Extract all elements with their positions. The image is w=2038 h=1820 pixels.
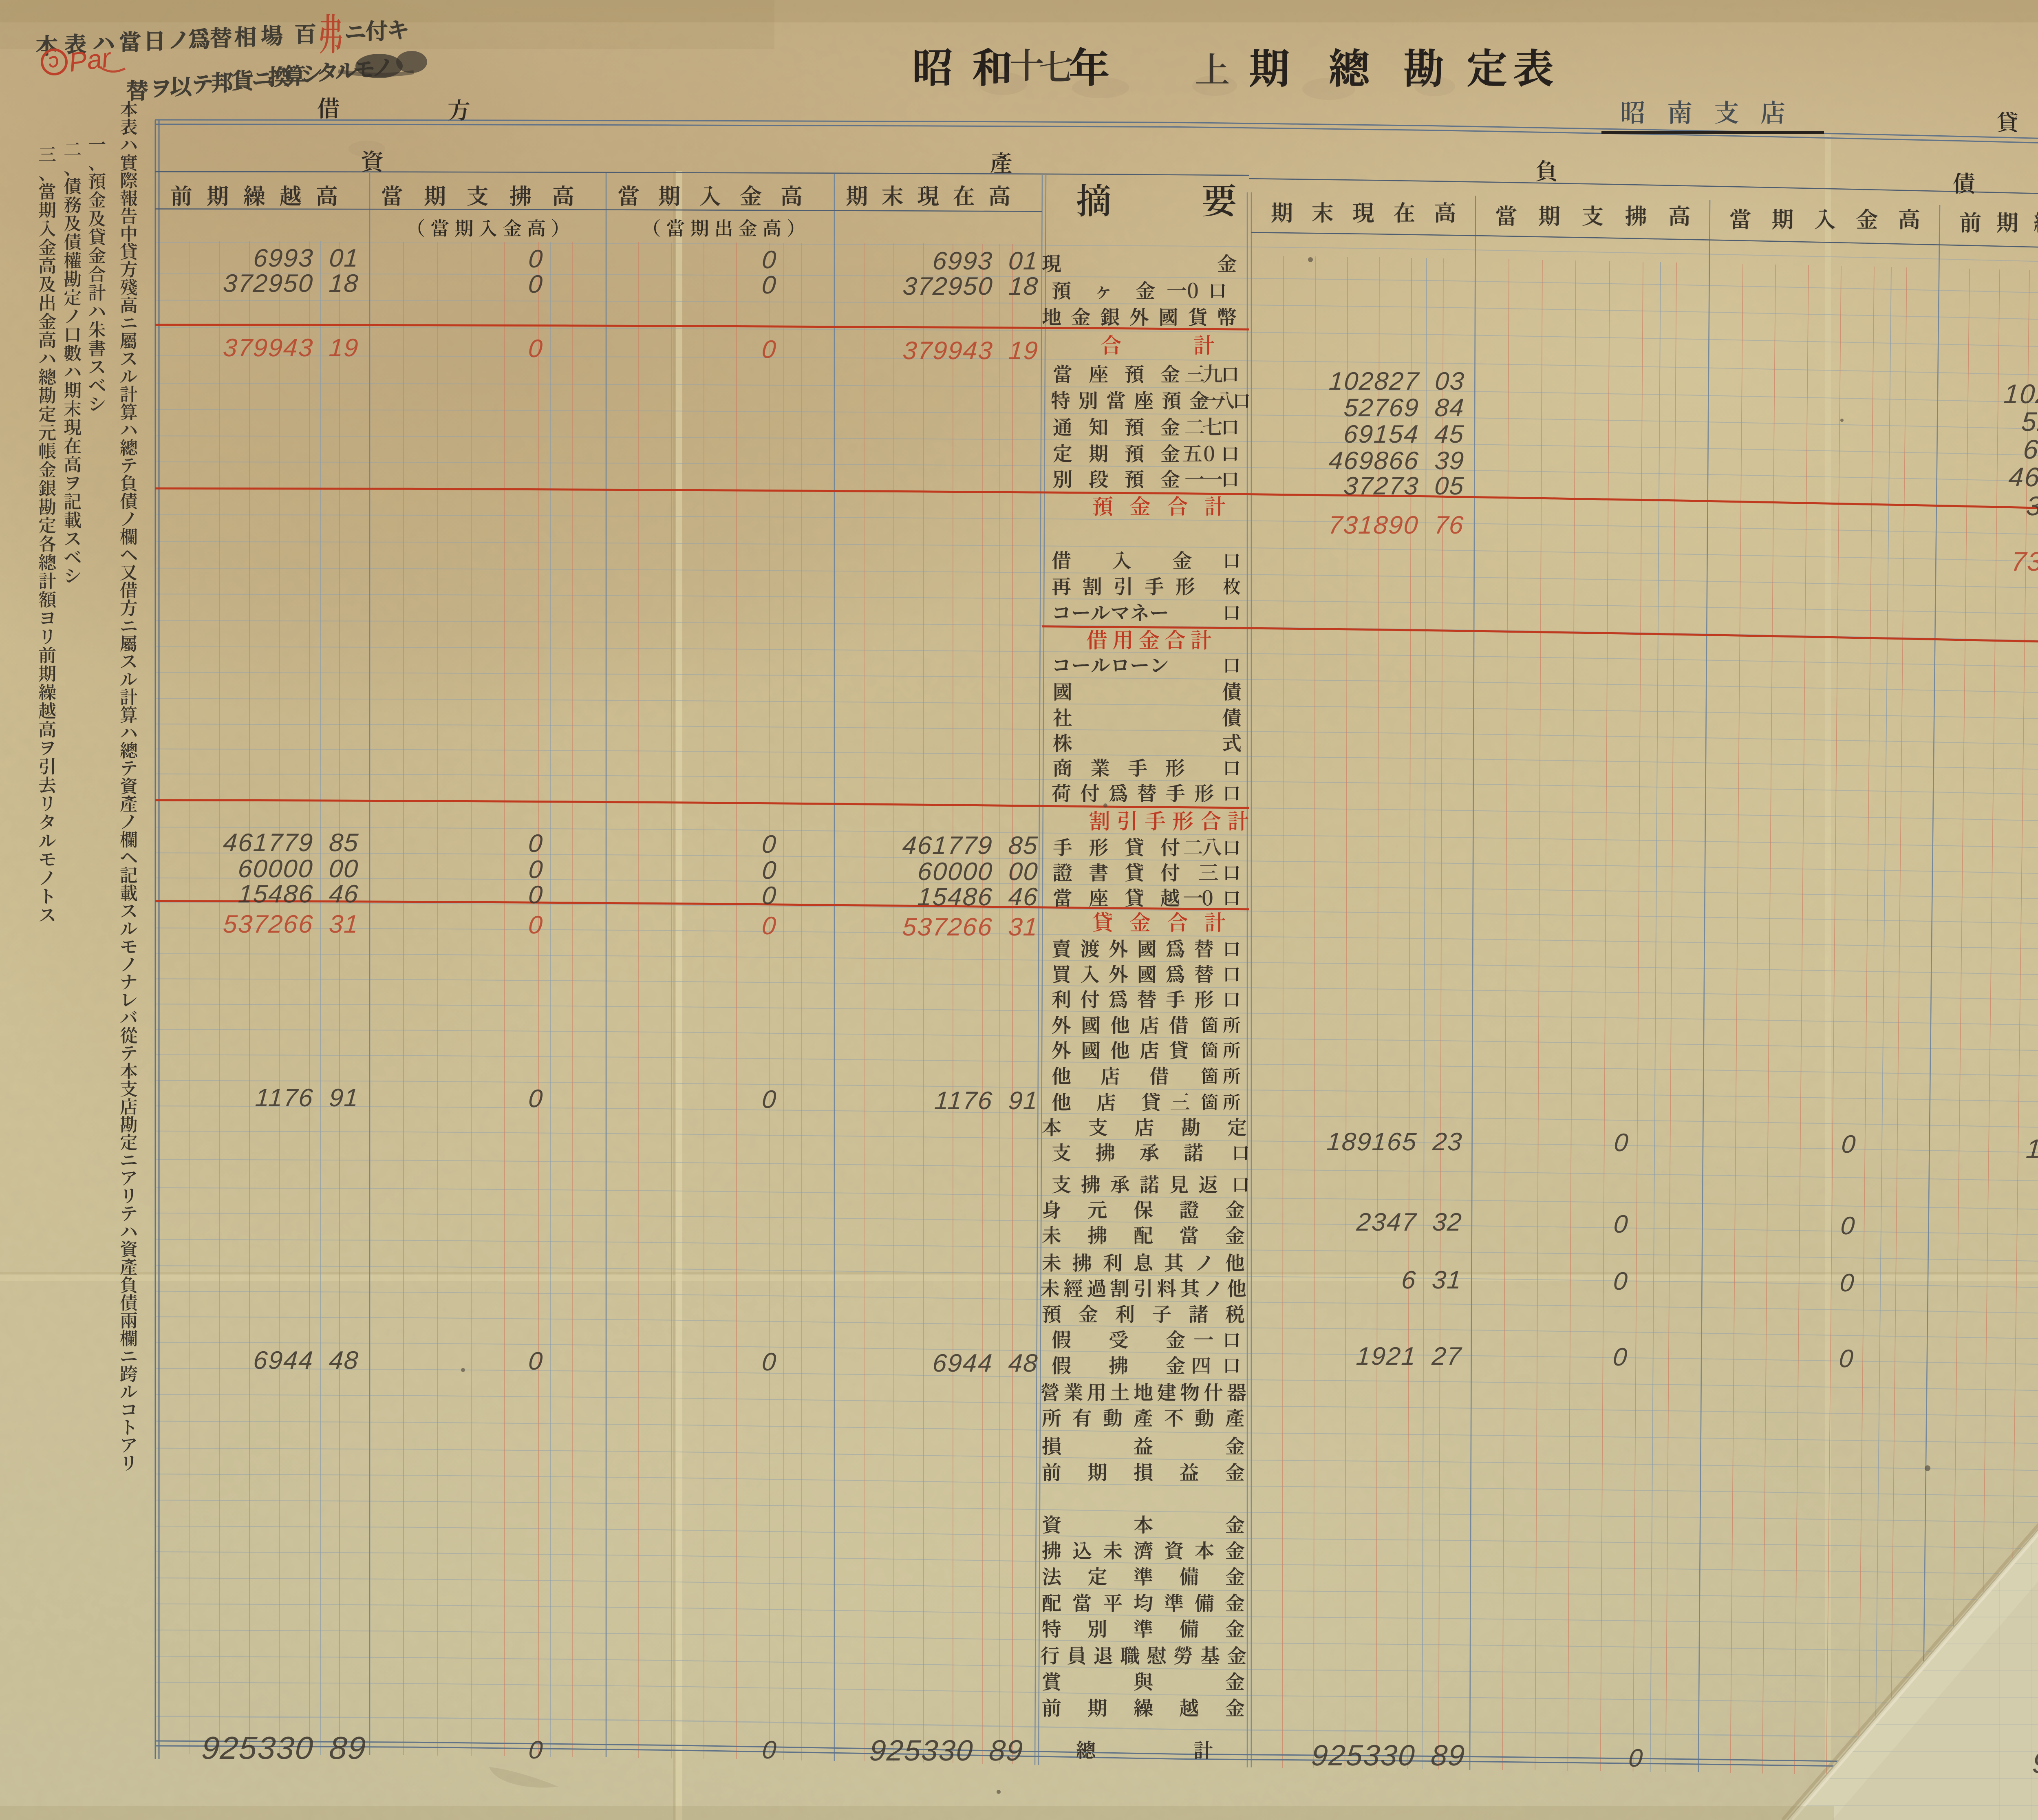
svg-text:19: 19: [328, 334, 360, 362]
svg-text:6944: 6944: [932, 1349, 994, 1377]
svg-text:102827: 102827: [1328, 367, 1420, 395]
svg-text:102827: 102827: [2003, 379, 2038, 409]
svg-text:0: 0: [527, 856, 545, 884]
svg-text:0: 0: [1613, 1129, 1630, 1157]
svg-text:6944: 6944: [252, 1346, 315, 1374]
svg-text:379943: 379943: [222, 334, 315, 362]
svg-text:0: 0: [761, 335, 778, 364]
svg-text:6993: 6993: [252, 244, 315, 272]
svg-text:37273: 37273: [1343, 472, 1420, 500]
svg-text:1176: 1176: [933, 1087, 994, 1115]
svg-text:0: 0: [761, 882, 778, 910]
svg-text:32: 32: [1431, 1208, 1463, 1236]
svg-text:91: 91: [328, 1084, 360, 1112]
svg-text:0: 0: [527, 911, 545, 939]
svg-text:91: 91: [1008, 1087, 1039, 1115]
svg-text:0: 0: [1612, 1343, 1629, 1371]
svg-text:31: 31: [1008, 913, 1039, 941]
svg-text:69154: 69154: [1343, 420, 1420, 448]
svg-text:01: 01: [1008, 247, 1039, 275]
svg-text:39: 39: [1434, 447, 1466, 475]
svg-text:27: 27: [1431, 1342, 1463, 1370]
svg-text:537266: 537266: [222, 910, 315, 938]
svg-text:0: 0: [761, 1736, 778, 1764]
svg-text:Par: Par: [67, 42, 114, 77]
svg-text:46: 46: [1008, 883, 1039, 911]
svg-text:0: 0: [527, 1085, 545, 1113]
svg-text:48: 48: [328, 1346, 360, 1374]
svg-text:0: 0: [1840, 1130, 1857, 1158]
svg-text:372950: 372950: [902, 272, 995, 300]
svg-text:0: 0: [761, 246, 778, 274]
svg-text:537266: 537266: [902, 913, 994, 941]
svg-text:0: 0: [1838, 1345, 1855, 1373]
svg-text:23: 23: [1431, 1128, 1464, 1156]
svg-text:925330: 925330: [201, 1730, 315, 1766]
svg-text:84: 84: [1434, 394, 1466, 422]
svg-text:60000: 60000: [917, 858, 994, 886]
svg-text:69154: 69154: [2022, 435, 2038, 465]
svg-text:15486: 15486: [917, 883, 994, 911]
svg-text:372950: 372950: [222, 269, 315, 298]
svg-text:0: 0: [527, 245, 545, 273]
svg-text:925330: 925330: [1310, 1739, 1417, 1772]
svg-text:60000: 60000: [237, 855, 315, 883]
svg-text:85: 85: [328, 829, 360, 857]
svg-text:19: 19: [1008, 337, 1039, 365]
svg-text:45: 45: [1434, 420, 1465, 448]
svg-text:1921: 1921: [1355, 1342, 1418, 1370]
svg-text:0: 0: [761, 856, 778, 885]
svg-text:00: 00: [328, 855, 360, 883]
svg-text:18: 18: [328, 269, 360, 298]
svg-text:52769: 52769: [1343, 394, 1420, 422]
svg-text:37273: 37273: [2025, 491, 2038, 521]
svg-text:48: 48: [1008, 1349, 1039, 1377]
svg-text:0: 0: [1612, 1267, 1630, 1295]
svg-text:925330: 925330: [869, 1734, 975, 1767]
svg-text:18: 18: [1008, 272, 1039, 300]
svg-text:0: 0: [527, 881, 545, 909]
svg-text:05: 05: [1434, 472, 1465, 500]
svg-text:52769: 52769: [2020, 407, 2038, 437]
svg-text:6: 6: [1401, 1266, 1418, 1294]
svg-text:0: 0: [761, 830, 778, 858]
svg-text:2347: 2347: [1355, 1208, 1418, 1236]
svg-text:89: 89: [1430, 1739, 1467, 1772]
svg-text:15486: 15486: [237, 880, 315, 908]
svg-text:0: 0: [527, 1347, 545, 1375]
svg-text:0: 0: [1839, 1212, 1857, 1240]
svg-text:379943: 379943: [902, 337, 995, 365]
svg-text:189165: 189165: [2025, 1134, 2038, 1164]
svg-text:0: 0: [527, 1736, 545, 1764]
svg-text:0: 0: [1613, 1210, 1630, 1238]
svg-text:189165: 189165: [1326, 1128, 1418, 1156]
svg-text:89: 89: [328, 1730, 368, 1766]
svg-text:03: 03: [1434, 367, 1466, 395]
svg-text:731890: 731890: [2010, 547, 2038, 577]
svg-text:0: 0: [761, 1348, 778, 1376]
svg-text:0: 0: [527, 829, 545, 858]
svg-text:0: 0: [1628, 1744, 1645, 1772]
svg-text:1176: 1176: [254, 1084, 315, 1112]
svg-text:01: 01: [328, 244, 360, 272]
svg-text:731890: 731890: [1328, 511, 1420, 539]
svg-text:461779: 461779: [222, 829, 315, 857]
svg-text:0: 0: [527, 335, 545, 363]
svg-text:461779: 461779: [902, 832, 994, 860]
svg-text:46: 46: [328, 880, 360, 908]
svg-text:0: 0: [527, 270, 545, 298]
svg-text:0: 0: [1839, 1269, 1856, 1297]
svg-text:0: 0: [761, 1085, 778, 1114]
svg-text:31: 31: [328, 910, 360, 938]
svg-text:76: 76: [1433, 511, 1465, 539]
svg-text:0: 0: [761, 912, 778, 940]
svg-text:31: 31: [1431, 1266, 1463, 1294]
svg-text:469866: 469866: [2007, 462, 2038, 492]
svg-text:6993: 6993: [932, 247, 994, 275]
svg-text:469866: 469866: [1328, 447, 1420, 475]
svg-text:89: 89: [988, 1734, 1025, 1767]
svg-text:00: 00: [1008, 858, 1039, 886]
svg-text:0: 0: [761, 271, 778, 299]
svg-text:85: 85: [1008, 832, 1039, 860]
